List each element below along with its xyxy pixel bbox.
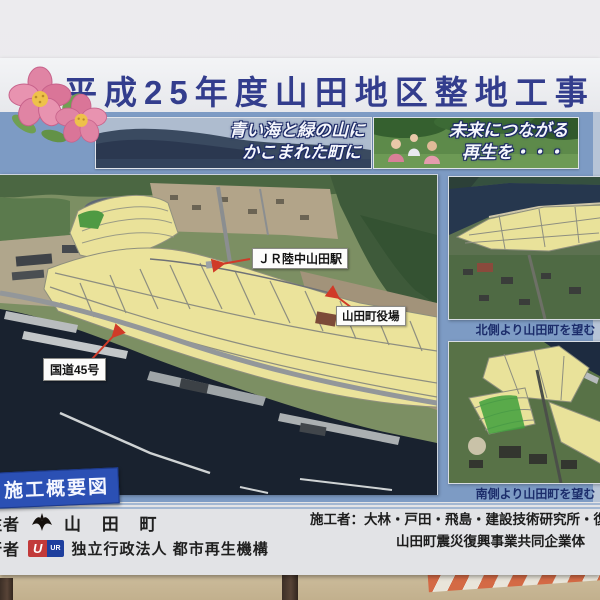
red-roof-building xyxy=(477,263,493,272)
orderer-row: 注者 山 田 町 xyxy=(0,510,164,535)
board-title: 平成25年度山田地区整地工事 xyxy=(64,66,600,114)
operator-name: 独立行政法人 都市再生機構 xyxy=(72,538,269,559)
flower-icon xyxy=(2,62,110,148)
banner-slogan-left: 青い海と緑の山に かこまれた町に xyxy=(229,120,365,164)
wooden-post xyxy=(0,578,13,600)
town-crest-icon xyxy=(30,512,54,534)
banner-line: 青い海と緑の山に xyxy=(229,120,365,142)
aerial-photo-south xyxy=(448,341,600,484)
aerial-photo-north xyxy=(448,176,600,320)
family-photo-banner: 未来につながる 再生を・・・ xyxy=(373,117,579,169)
operator-label: 行者 xyxy=(0,536,20,560)
map-label-townhall: 山田町役場 xyxy=(336,306,406,326)
ur-logo-u: U xyxy=(28,540,47,557)
orderer-name: 山 田 町 xyxy=(64,510,164,535)
map-tag-overview: 施工概要図 xyxy=(0,467,120,508)
aerial-map-rendering xyxy=(0,175,437,495)
photo-of-signboard: 平成25年度山田地区整地工事 xyxy=(0,0,600,600)
contractor-line-1: 施工者：大林・戸田・飛島・建設技術研究所・復建技術 xyxy=(310,508,600,528)
contractor-line-2: 山田町震災復興事業共同企業体 xyxy=(396,530,585,550)
banner-line: かこまれた町に xyxy=(229,142,365,164)
ur-logo-ur: UR xyxy=(47,540,63,557)
construction-overview-map xyxy=(0,174,438,495)
banner-line: 再生を・・・ xyxy=(449,142,568,164)
ur-logo-icon: U UR xyxy=(28,540,64,557)
sea-mountain-photo-banner: 青い海と緑の山に かこまれた町に xyxy=(95,117,372,169)
operator-row: 行者 U UR 独立行政法人 都市再生機構 xyxy=(0,536,269,560)
photo-caption-north: 北側より山田町を望む xyxy=(448,321,600,338)
banner-slogan-right: 未来につながる 再生を・・・ xyxy=(449,120,568,164)
map-label-route45: 国道45号 xyxy=(43,358,106,381)
construction-sign-board: 平成25年度山田地区整地工事 xyxy=(0,58,600,575)
photo-caption-south: 南側より山田町を望む xyxy=(448,485,600,502)
wooden-post xyxy=(282,574,298,600)
map-label-station: ＪＲ陸中山田駅 xyxy=(252,248,348,269)
banner-line: 未来につながる xyxy=(449,120,568,142)
orderer-label: 注者 xyxy=(0,511,20,535)
